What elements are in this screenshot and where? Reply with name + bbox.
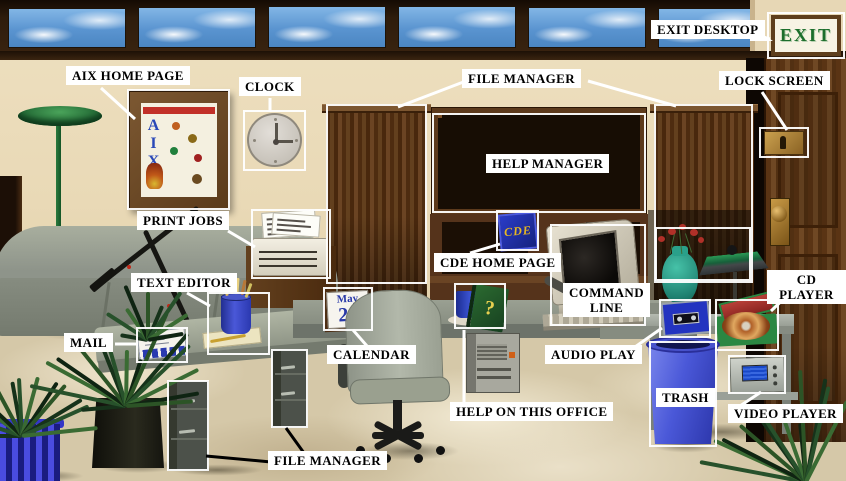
- label-print-jobs[interactable]: PRINT JOBS: [137, 211, 229, 230]
- printer-hotspot[interactable]: [251, 209, 331, 279]
- label-lock-screen[interactable]: LOCK SCREEN: [719, 71, 830, 90]
- label-audio-play[interactable]: AUDIO PLAY: [545, 345, 642, 364]
- clock-hotspot[interactable]: [243, 110, 306, 171]
- help-book-hotspot[interactable]: [454, 283, 506, 329]
- label-aix-home-page[interactable]: AIX HOME PAGE: [66, 66, 190, 85]
- envelope-hotspot[interactable]: [136, 327, 188, 363]
- label-help-on-this-office[interactable]: HELP ON THIS OFFICE: [450, 402, 613, 421]
- virtual-office-scene: EXIT AIX: [0, 0, 846, 481]
- label-mail[interactable]: MAIL: [64, 333, 113, 352]
- aix-poster-hotspot[interactable]: [127, 89, 230, 210]
- door-lock-hotspot[interactable]: [759, 127, 809, 158]
- label-file-manager-bottom[interactable]: FILE MANAGER: [268, 451, 387, 470]
- label-calendar[interactable]: CALENDAR: [327, 345, 416, 364]
- label-file-manager-top[interactable]: FILE MANAGER: [462, 69, 581, 88]
- flower-vase-hotspot[interactable]: [655, 227, 751, 281]
- label-cd-player[interactable]: CD PLAYER: [767, 270, 846, 304]
- cd-hotspot[interactable]: [715, 299, 779, 351]
- label-trash[interactable]: TRASH: [656, 388, 715, 407]
- label-help-manager[interactable]: HELP MANAGER: [486, 154, 609, 173]
- drawer-center-hotspot[interactable]: [271, 349, 308, 428]
- label-clock[interactable]: CLOCK: [239, 77, 301, 96]
- cassette-hotspot[interactable]: [659, 299, 711, 338]
- pencil-cup-hotspot[interactable]: [207, 292, 270, 355]
- exit-sign-hotspot[interactable]: [767, 12, 845, 59]
- label-exit-desktop[interactable]: EXIT DESKTOP: [651, 20, 765, 39]
- desk-calendar-hotspot[interactable]: [323, 287, 373, 331]
- label-text-editor[interactable]: TEXT EDITOR: [131, 273, 237, 292]
- cabinet-left-hotspot[interactable]: [326, 104, 427, 284]
- label-cde-home-page[interactable]: CDE HOME PAGE: [434, 253, 561, 272]
- video-player-hotspot[interactable]: [728, 355, 786, 394]
- drawer-left-hotspot[interactable]: [167, 380, 209, 471]
- cde-icon-hotspot[interactable]: [496, 210, 539, 251]
- label-command-line[interactable]: COMMAND LINE: [563, 283, 650, 317]
- label-video-player[interactable]: VIDEO PLAYER: [728, 404, 843, 423]
